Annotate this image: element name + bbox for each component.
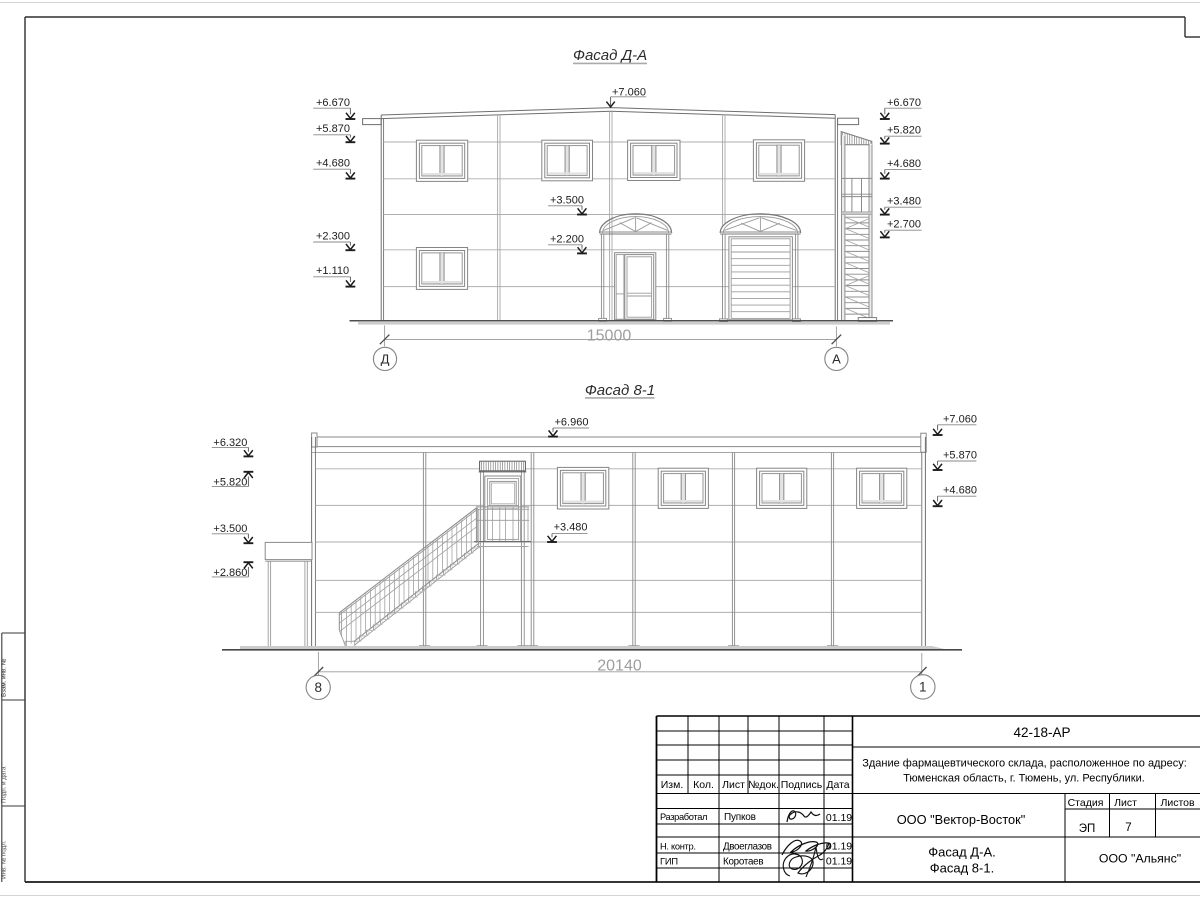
svg-text:ООО "Вектор-Восток": ООО "Вектор-Восток" (897, 812, 1026, 827)
svg-text:+4.680: +4.680 (316, 158, 350, 170)
svg-text:Стадия: Стадия (1068, 797, 1104, 809)
svg-text:Д: Д (381, 352, 390, 367)
svg-text:Коротаев: Коротаев (723, 857, 763, 868)
svg-text:Здание фармацевтического склад: Здание фармацевтического склада, располо… (862, 758, 1187, 770)
svg-text:42-18-АР: 42-18-АР (1013, 725, 1070, 740)
svg-text:Листов: Листов (1160, 797, 1195, 809)
svg-text:Двоеглазов: Двоеглазов (723, 842, 772, 853)
svg-text:7: 7 (1125, 822, 1131, 834)
svg-text:+5.870: +5.870 (943, 450, 977, 462)
svg-text:01.19: 01.19 (826, 856, 852, 868)
svg-text:Подп. и дата: Подп. и дата (1, 766, 8, 803)
svg-text:Лист: Лист (722, 779, 745, 791)
svg-text:+3.500: +3.500 (550, 195, 584, 207)
svg-text:+2.300: +2.300 (316, 230, 350, 242)
svg-text:№док.: №док. (748, 779, 779, 791)
svg-text:1: 1 (919, 680, 927, 695)
svg-text:Фасад Д-А: Фасад Д-А (573, 47, 647, 64)
svg-text:Фасад Д-А.: Фасад Д-А. (928, 845, 995, 860)
svg-text:Разработал: Разработал (660, 812, 707, 822)
svg-text:Подпись: Подпись (781, 779, 823, 791)
svg-text:+2.700: +2.700 (887, 219, 921, 231)
svg-text:+6.960: +6.960 (555, 416, 589, 428)
svg-text:+3.480: +3.480 (887, 196, 921, 208)
svg-text:А: А (832, 352, 841, 367)
svg-text:+5.870: +5.870 (316, 123, 350, 135)
svg-text:20140: 20140 (597, 657, 642, 674)
svg-text:ГИП: ГИП (660, 857, 678, 867)
svg-text:ООО "Альянс": ООО "Альянс" (1099, 852, 1181, 866)
svg-text:Лист: Лист (1114, 797, 1137, 809)
svg-text:15000: 15000 (587, 328, 632, 345)
svg-text:+7.060: +7.060 (943, 413, 977, 425)
svg-text:+3.480: +3.480 (554, 521, 588, 533)
svg-text:+1.110: +1.110 (316, 265, 349, 277)
svg-text:+5.820: +5.820 (887, 125, 921, 137)
svg-text:Тюменская область, г. Тюмень,: Тюменская область, г. Тюмень, ул. Респуб… (903, 773, 1145, 785)
svg-text:Кол.: Кол. (693, 779, 714, 791)
svg-text:+6.670: +6.670 (316, 97, 350, 109)
svg-text:8: 8 (314, 680, 322, 695)
svg-text:01.19: 01.19 (826, 812, 852, 824)
svg-text:+2.200: +2.200 (550, 234, 584, 246)
svg-text:+6.670: +6.670 (887, 97, 921, 109)
svg-text:Н. контр.: Н. контр. (660, 842, 696, 852)
svg-text:+4.680: +4.680 (887, 158, 921, 170)
svg-text:Пупков: Пупков (724, 812, 756, 823)
svg-text:Инв. № подл.: Инв. № подл. (1, 840, 8, 879)
svg-text:+4.680: +4.680 (943, 485, 977, 497)
svg-text:ЭП: ЭП (1079, 823, 1096, 835)
svg-text:Дата: Дата (826, 779, 849, 791)
svg-text:Фасад 8-1.: Фасад 8-1. (930, 861, 994, 876)
svg-text:Изм.: Изм. (661, 779, 684, 791)
svg-text:Фасад 8-1: Фасад 8-1 (585, 382, 655, 399)
svg-text:Взам. инв. №: Взам. инв. № (1, 658, 8, 697)
